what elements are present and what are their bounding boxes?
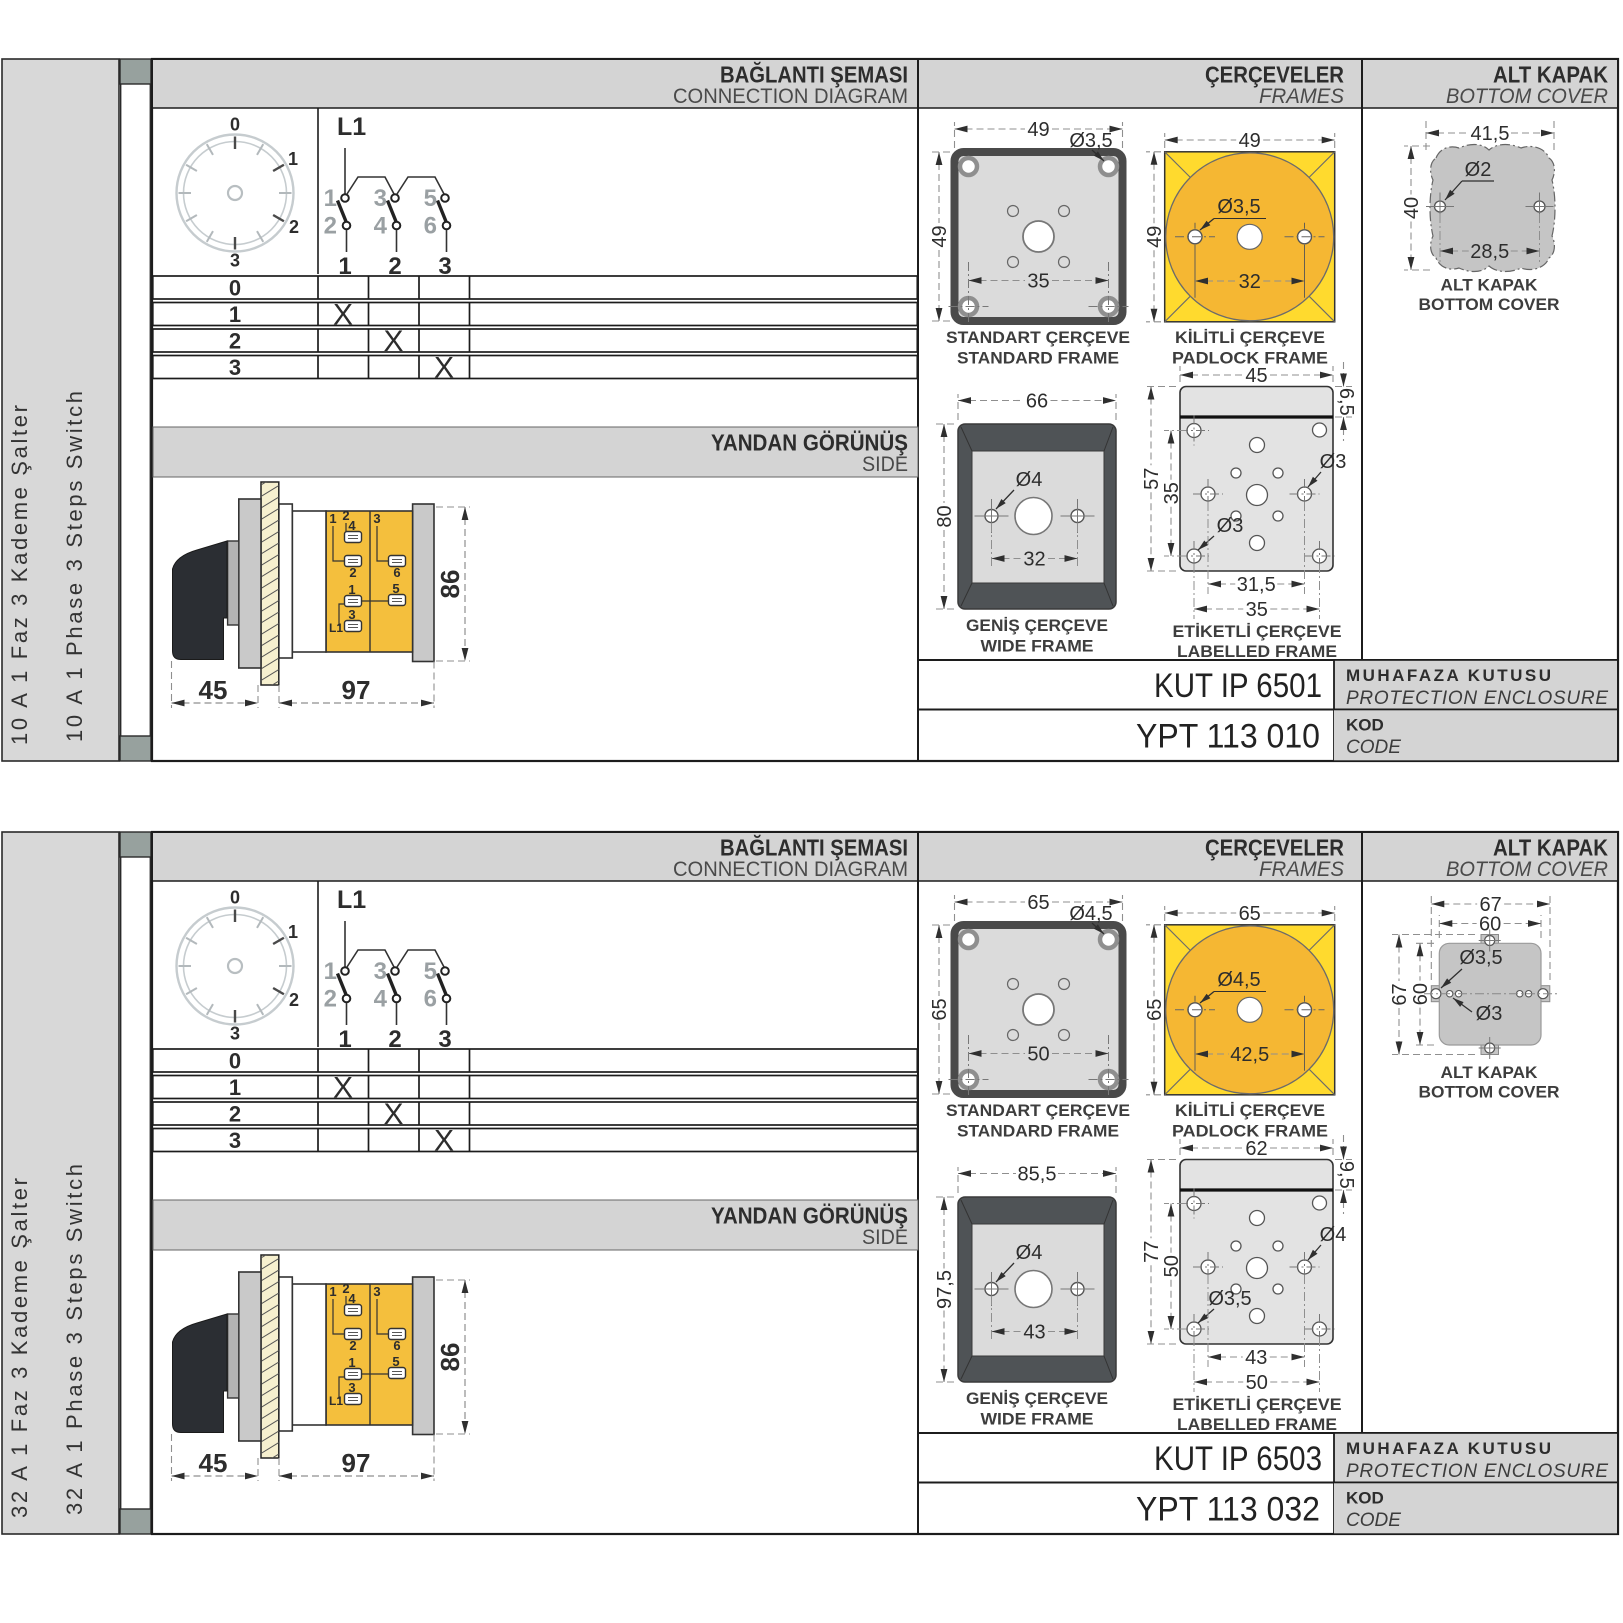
svg-text:65: 65	[1027, 892, 1049, 914]
svg-text:49: 49	[1144, 226, 1166, 248]
svg-text:6,5: 6,5	[1335, 388, 1357, 416]
svg-text:85,5: 85,5	[1018, 1164, 1057, 1186]
svg-text:66: 66	[1026, 391, 1048, 413]
svg-text:STANDARD FRAME: STANDARD FRAME	[957, 349, 1119, 368]
svg-text:KUT IP 6501: KUT IP 6501	[1154, 667, 1322, 705]
svg-text:PROTECTION ENCLOSURE: PROTECTION ENCLOSURE	[1346, 688, 1608, 709]
svg-text:Ø4,5: Ø4,5	[1069, 903, 1112, 925]
svg-text:L1: L1	[329, 621, 343, 635]
svg-text:3: 3	[348, 607, 355, 622]
svg-text:Ø3: Ø3	[1217, 515, 1244, 537]
svg-text:KOD: KOD	[1346, 1489, 1384, 1508]
svg-text:49: 49	[1027, 119, 1049, 141]
svg-text:WIDE FRAME: WIDE FRAME	[981, 637, 1094, 656]
svg-text:41,5: 41,5	[1471, 123, 1510, 145]
svg-text:45: 45	[199, 1448, 228, 1478]
svg-text:ETİKETLİ ÇERÇEVE: ETİKETLİ ÇERÇEVE	[1173, 622, 1342, 641]
svg-text:65: 65	[929, 998, 951, 1020]
svg-text:X: X	[333, 1072, 353, 1105]
svg-text:4: 4	[374, 986, 388, 1013]
svg-text:6: 6	[393, 1338, 400, 1353]
svg-text:50: 50	[1027, 1044, 1049, 1066]
svg-text:X: X	[434, 1125, 454, 1158]
svg-text:YPT 113 032: YPT 113 032	[1136, 1491, 1320, 1529]
svg-text:BOTTOM COVER: BOTTOM COVER	[1446, 857, 1608, 881]
svg-text:STANDART ÇERÇEVE: STANDART ÇERÇEVE	[946, 328, 1130, 347]
svg-text:35: 35	[1246, 599, 1268, 621]
svg-text:2: 2	[324, 213, 337, 240]
svg-text:3: 3	[229, 1128, 241, 1153]
svg-text:ALT KAPAK: ALT KAPAK	[1441, 276, 1539, 295]
svg-text:49: 49	[929, 225, 951, 247]
svg-text:X: X	[333, 299, 353, 332]
svg-text:STANDARD FRAME: STANDARD FRAME	[957, 1122, 1119, 1141]
svg-text:2: 2	[289, 990, 299, 1010]
svg-text:Ø4,5: Ø4,5	[1217, 969, 1260, 991]
svg-text:Ø3,5: Ø3,5	[1459, 947, 1502, 969]
svg-text:42,5: 42,5	[1230, 1044, 1269, 1066]
svg-text:35: 35	[1161, 482, 1183, 504]
svg-text:ALT KAPAK: ALT KAPAK	[1441, 1063, 1539, 1082]
svg-text:77: 77	[1141, 1241, 1163, 1263]
svg-text:Ø4: Ø4	[1016, 1242, 1043, 1264]
svg-text:CONNECTION DIAGRAM: CONNECTION DIAGRAM	[673, 84, 908, 108]
svg-text:2: 2	[289, 217, 299, 237]
svg-text:Ø2: Ø2	[1465, 159, 1492, 181]
svg-text:6: 6	[424, 986, 437, 1013]
svg-text:10 A 1 Phase 3 Steps Switch: 10 A 1 Phase 3 Steps Switch	[62, 391, 87, 742]
svg-text:CODE: CODE	[1346, 737, 1401, 758]
svg-text:80: 80	[934, 505, 956, 527]
svg-text:86: 86	[435, 1343, 465, 1372]
svg-text:1: 1	[229, 1075, 241, 1100]
svg-text:Ø4: Ø4	[1320, 1224, 1347, 1246]
svg-text:60: 60	[1410, 983, 1432, 1005]
svg-text:SIDE: SIDE	[862, 1225, 908, 1249]
svg-text:1: 1	[348, 1355, 355, 1370]
svg-text:ETİKETLİ ÇERÇEVE: ETİKETLİ ÇERÇEVE	[1173, 1395, 1342, 1414]
svg-text:Ø4: Ø4	[1016, 469, 1043, 491]
svg-text:L1: L1	[337, 886, 366, 914]
svg-text:1: 1	[329, 1284, 336, 1299]
svg-text:CODE: CODE	[1346, 1510, 1401, 1531]
svg-text:49: 49	[1239, 130, 1261, 152]
svg-text:6: 6	[424, 213, 437, 240]
svg-text:X: X	[434, 352, 454, 385]
svg-text:X: X	[383, 325, 403, 358]
svg-text:97: 97	[342, 1448, 371, 1478]
svg-text:1: 1	[329, 511, 336, 526]
svg-text:60: 60	[1479, 914, 1501, 936]
svg-text:PROTECTION ENCLOSURE: PROTECTION ENCLOSURE	[1346, 1461, 1608, 1482]
svg-text:1: 1	[324, 185, 337, 212]
svg-text:CONNECTION DIAGRAM: CONNECTION DIAGRAM	[673, 857, 908, 881]
svg-text:6: 6	[393, 565, 400, 580]
svg-text:L1: L1	[337, 113, 366, 141]
svg-text:2: 2	[229, 1101, 241, 1126]
svg-text:1: 1	[288, 922, 298, 942]
svg-text:KUT IP 6503: KUT IP 6503	[1154, 1440, 1322, 1478]
svg-text:45: 45	[1245, 365, 1267, 387]
svg-text:31,5: 31,5	[1237, 574, 1276, 596]
svg-text:9,5: 9,5	[1335, 1161, 1357, 1189]
svg-text:Ø3,5: Ø3,5	[1069, 130, 1112, 152]
svg-text:4: 4	[348, 1291, 356, 1306]
svg-text:32: 32	[1023, 549, 1045, 571]
svg-text:1: 1	[229, 302, 241, 327]
svg-text:GENİŞ ÇERÇEVE: GENİŞ ÇERÇEVE	[966, 1389, 1108, 1408]
svg-text:1: 1	[324, 958, 337, 985]
svg-text:2: 2	[349, 1338, 356, 1353]
svg-text:GENİŞ ÇERÇEVE: GENİŞ ÇERÇEVE	[966, 616, 1108, 635]
svg-text:2: 2	[349, 565, 356, 580]
svg-text:50: 50	[1161, 1255, 1183, 1277]
svg-text:32 A 1 Phase 3 Steps Switch: 32 A 1 Phase 3 Steps Switch	[62, 1164, 87, 1515]
svg-text:2: 2	[229, 328, 241, 353]
svg-text:5: 5	[392, 581, 399, 596]
svg-text:WIDE FRAME: WIDE FRAME	[981, 1410, 1094, 1429]
svg-text:MUHAFAZA KUTUSU: MUHAFAZA KUTUSU	[1346, 1439, 1551, 1458]
svg-text:4: 4	[348, 518, 356, 533]
svg-text:0: 0	[230, 115, 240, 135]
svg-text:Ø3: Ø3	[1320, 451, 1347, 473]
svg-text:5: 5	[424, 185, 437, 212]
svg-text:LABELLED FRAME: LABELLED FRAME	[1177, 1415, 1337, 1434]
svg-text:FRAMES: FRAMES	[1259, 84, 1345, 108]
svg-text:Ø3,5: Ø3,5	[1217, 196, 1260, 218]
svg-text:LABELLED FRAME: LABELLED FRAME	[1177, 642, 1337, 661]
svg-text:BOTTOM COVER: BOTTOM COVER	[1446, 84, 1608, 108]
svg-text:5: 5	[424, 958, 437, 985]
svg-text:97: 97	[342, 675, 371, 705]
svg-text:97,5: 97,5	[934, 1270, 956, 1309]
svg-text:3: 3	[230, 1024, 240, 1044]
svg-text:3: 3	[229, 355, 241, 380]
svg-text:43: 43	[1245, 1347, 1267, 1369]
svg-text:3: 3	[373, 511, 380, 526]
svg-text:YPT 113 010: YPT 113 010	[1136, 718, 1320, 756]
svg-text:40: 40	[1401, 197, 1423, 219]
svg-text:65: 65	[1239, 903, 1261, 925]
svg-text:BOTTOM COVER: BOTTOM COVER	[1419, 295, 1560, 314]
svg-text:SIDE: SIDE	[862, 452, 908, 476]
svg-text:MUHAFAZA KUTUSU: MUHAFAZA KUTUSU	[1346, 666, 1551, 685]
svg-text:45: 45	[199, 675, 228, 705]
svg-text:STANDART ÇERÇEVE: STANDART ÇERÇEVE	[946, 1101, 1130, 1120]
svg-text:65: 65	[1144, 999, 1166, 1021]
svg-text:2: 2	[324, 986, 337, 1013]
svg-text:Ø3: Ø3	[1476, 1003, 1503, 1025]
svg-text:3: 3	[374, 958, 387, 985]
svg-text:57: 57	[1141, 468, 1163, 490]
svg-text:FRAMES: FRAMES	[1259, 857, 1345, 881]
svg-text:43: 43	[1023, 1322, 1045, 1344]
svg-text:KİLİTLİ ÇERÇEVE: KİLİTLİ ÇERÇEVE	[1175, 1101, 1325, 1120]
svg-text:1: 1	[348, 582, 355, 597]
svg-text:86: 86	[435, 570, 465, 599]
svg-text:32: 32	[1239, 271, 1261, 293]
svg-text:62: 62	[1245, 1138, 1267, 1160]
svg-text:4: 4	[374, 213, 388, 240]
svg-text:3: 3	[348, 1380, 355, 1395]
svg-text:3: 3	[374, 185, 387, 212]
svg-text:L1: L1	[329, 1394, 343, 1408]
svg-text:KİLİTLİ ÇERÇEVE: KİLİTLİ ÇERÇEVE	[1175, 328, 1325, 347]
svg-text:KOD: KOD	[1346, 716, 1384, 735]
svg-text:1: 1	[288, 149, 298, 169]
svg-text:5: 5	[392, 1354, 399, 1369]
svg-text:X: X	[383, 1098, 403, 1131]
svg-text:50: 50	[1246, 1372, 1268, 1394]
svg-text:Ø3,5: Ø3,5	[1208, 1288, 1251, 1310]
svg-text:BOTTOM COVER: BOTTOM COVER	[1419, 1083, 1560, 1102]
svg-text:0: 0	[230, 888, 240, 908]
svg-text:28,5: 28,5	[1470, 241, 1509, 263]
svg-text:67: 67	[1389, 983, 1411, 1005]
svg-text:0: 0	[229, 275, 241, 300]
svg-text:35: 35	[1027, 271, 1049, 293]
svg-text:3: 3	[230, 251, 240, 271]
svg-text:3: 3	[373, 1284, 380, 1299]
svg-text:0: 0	[229, 1048, 241, 1073]
